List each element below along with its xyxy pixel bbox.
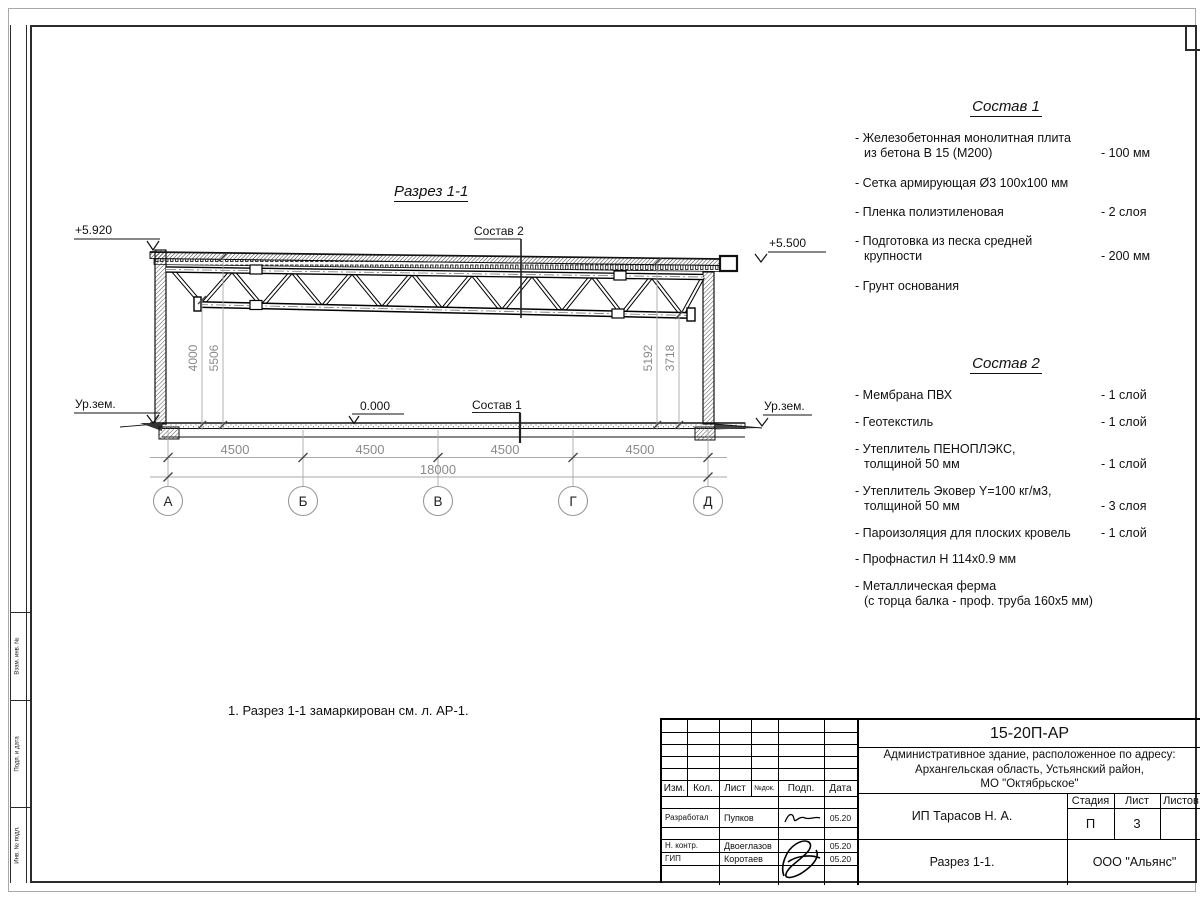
item-name: - Грунт основания	[855, 279, 1101, 294]
signature-developer	[781, 810, 823, 826]
list-item: - Грунт основания	[855, 279, 1157, 294]
truss-end-plate-right	[687, 308, 695, 321]
comp1-leader-label: Состав 1	[472, 398, 522, 412]
tb-stage-value: П	[1067, 808, 1114, 839]
tb-line	[662, 744, 857, 745]
tb-company: ООО "Альянс"	[1067, 839, 1200, 885]
list-item: - Утеплитель ПЕНОПЛЭКС, толщиной 50 мм -…	[855, 442, 1157, 473]
list-item: - Подготовка из песка средней крупности …	[855, 234, 1157, 265]
tb-line	[662, 865, 857, 866]
axis-label-a: А	[163, 494, 172, 509]
axis-label-d: Д	[703, 494, 712, 509]
dim-left-5506: 5506	[207, 344, 221, 371]
tb-line	[662, 796, 857, 797]
elevation-left: +5.920	[75, 223, 112, 237]
item-name: - Пароизоляция для плоских кровель	[855, 526, 1101, 541]
item-qty: - 100 мм	[1101, 146, 1157, 161]
tb-sheets-label: Листов	[1160, 793, 1200, 808]
tb-role-gip: ГИП	[662, 852, 719, 865]
list-item: - Пленка полиэтиленовая - 2 слоя	[855, 205, 1157, 220]
dim-right-3718: 3718	[663, 344, 677, 371]
item-name: - Металлическая ферма (с торца балка - п…	[855, 579, 1101, 610]
tb-name-gip: Коротаев	[721, 852, 777, 865]
ground-level-left: Ур.зем.	[75, 397, 116, 411]
tb-sheet-value: 3	[1114, 808, 1160, 839]
zero-level: 0.000	[360, 399, 390, 413]
tb-role-developer: Разработал	[662, 808, 719, 827]
item-name: - Подготовка из песка средней крупности	[855, 234, 1101, 265]
tb-col-podp: Подп.	[778, 780, 824, 796]
axis-label-b: Б	[299, 494, 308, 509]
right-wall	[703, 272, 714, 424]
splice-plate	[250, 265, 262, 274]
item-name: - Железобетонная монолитная плита из бет…	[855, 131, 1101, 162]
tb-name-developer: Пупков	[721, 808, 777, 827]
item-qty: - 2 слоя	[1101, 205, 1157, 220]
foundation-left	[159, 427, 179, 439]
composition-1-title: Состав 1	[855, 98, 1157, 115]
list-item: - Железобетонная монолитная плита из бет…	[855, 131, 1157, 162]
list-item: - Металлическая ферма (с торца балка - п…	[855, 579, 1157, 610]
tb-col-kol: Кол.	[687, 780, 719, 796]
foundation-right	[695, 427, 715, 440]
sheet-note: 1. Разрез 1-1 замаркирован см. л. АР-1.	[228, 703, 469, 718]
tb-date-ncontrol: 05.20	[824, 839, 857, 852]
item-name: - Геотекстиль	[855, 415, 1101, 430]
tb-col-list: Лист	[719, 780, 751, 796]
item-name: - Пленка полиэтиленовая	[855, 205, 1101, 220]
list-item: - Сетка армирующая Ø3 100х100 мм	[855, 176, 1157, 191]
tb-col-ndok: №док.	[751, 780, 778, 796]
item-qty: - 1 слой	[1101, 388, 1157, 403]
list-item: - Геотекстиль - 1 слой	[855, 415, 1157, 430]
tb-line	[662, 768, 857, 769]
elevation-arrow	[147, 241, 159, 250]
tb-stage-label: Стадия	[1067, 793, 1114, 808]
tb-role-ncontrol: Н. контр.	[662, 839, 719, 852]
tb-sheet-label: Лист	[1114, 793, 1160, 808]
tb-project-name: Административное здание, расположенное п…	[857, 747, 1200, 793]
axis-label-v: В	[433, 494, 442, 509]
item-qty: - 3 слоя	[1101, 499, 1157, 514]
item-qty: - 1 слой	[1101, 526, 1157, 541]
item-name: - Мембрана ПВХ	[855, 388, 1101, 403]
axis-label-g: Г	[569, 494, 577, 509]
elevation-right: +5.500	[769, 236, 806, 250]
roof-end-beam	[720, 256, 737, 271]
composition-1-list: Состав 1 - Железобетонная монолитная пли…	[855, 98, 1157, 308]
elevation-arrow	[756, 418, 768, 426]
title-block: Изм. Кол. Лист №док. Подп. Дата Разработ…	[660, 718, 1200, 883]
signature-gip	[776, 836, 826, 882]
splice-plate	[614, 271, 626, 280]
item-qty: - 1 слой	[1101, 457, 1157, 472]
dim-span-4: 4500	[626, 442, 655, 457]
dim-span-2: 4500	[356, 442, 385, 457]
drawing-sheet: { "drawing": { "title": "Разрез 1-1", "e…	[0, 0, 1200, 900]
tb-line	[662, 756, 857, 757]
dim-span-1: 4500	[221, 442, 250, 457]
item-name: - Утеплитель Эковер Y=100 кг/м3, толщино…	[855, 484, 1101, 515]
list-item: - Утеплитель Эковер Y=100 кг/м3, толщино…	[855, 484, 1157, 515]
left-wall	[155, 250, 166, 424]
tb-doc-number: 15-20П-АР	[857, 720, 1200, 747]
tb-col-izm: Изм.	[662, 780, 687, 796]
splice-plate	[250, 301, 262, 310]
tb-client: ИП Тарасов Н. А.	[857, 793, 1067, 839]
list-item: - Мембрана ПВХ - 1 слой	[855, 388, 1157, 403]
splice-plate	[612, 309, 624, 318]
tb-name-ncontrol: Двоеглазов	[721, 839, 777, 852]
item-qty: - 200 мм	[1101, 249, 1157, 264]
comp2-leader-label: Состав 2	[474, 224, 524, 238]
ground-level-right: Ур.зем.	[764, 399, 805, 413]
axis-bubbles: А Б В Г Д	[154, 487, 723, 516]
item-name: - Сетка армирующая Ø3 100х100 мм	[855, 176, 1101, 191]
list-item: - Пароизоляция для плоских кровель - 1 с…	[855, 526, 1157, 541]
item-qty: - 1 слой	[1101, 415, 1157, 430]
list-item: - Профнастил Н 114х0.9 мм	[855, 552, 1157, 567]
dim-span-3: 4500	[491, 442, 520, 457]
dim-total: 18000	[420, 462, 456, 477]
dim-left-4000: 4000	[186, 344, 200, 371]
tb-sheet-title: Разрез 1-1.	[857, 839, 1067, 885]
tb-line	[662, 732, 857, 733]
tb-line	[662, 827, 857, 828]
item-name: - Утеплитель ПЕНОПЛЭКС, толщиной 50 мм	[855, 442, 1101, 473]
item-name: - Профнастил Н 114х0.9 мм	[855, 552, 1101, 567]
tb-date-gip: 05.20	[824, 852, 857, 865]
elevation-arrow	[755, 254, 767, 262]
dim-right-5192: 5192	[641, 344, 655, 371]
drawing-title: Разрез 1-1	[394, 183, 468, 202]
composition-2-title: Состав 2	[855, 355, 1157, 372]
truss-end-plate-left	[194, 297, 201, 311]
composition-2-list: Состав 2 - Мембрана ПВХ - 1 слой - Геоте…	[855, 355, 1157, 621]
tb-col-data: Дата	[824, 780, 857, 796]
tb-date-developer: 05.20	[824, 808, 857, 827]
